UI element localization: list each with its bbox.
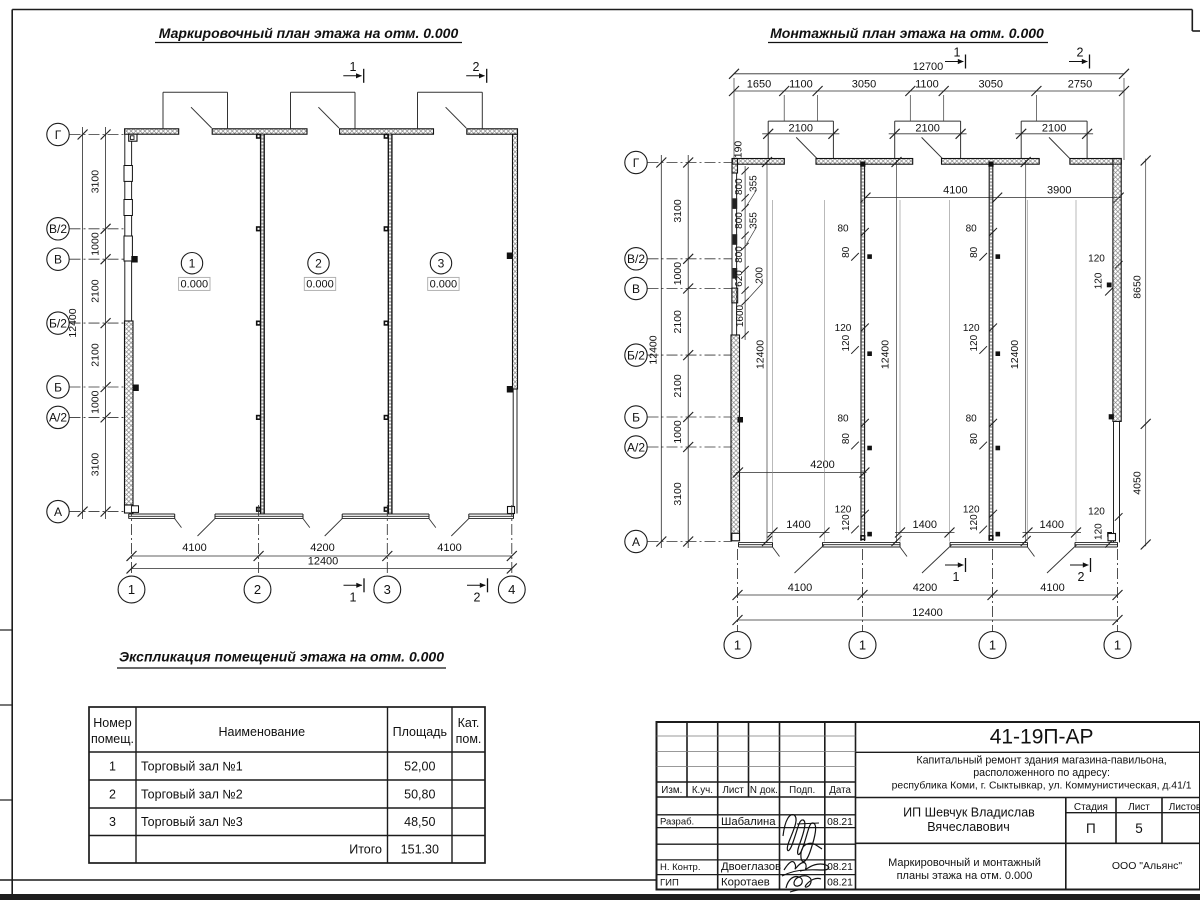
svg-text:355: 355 [748, 212, 759, 229]
svg-text:12400: 12400 [67, 308, 79, 337]
svg-text:планы этажа на отм. 0.000: планы этажа на отм. 0.000 [897, 870, 1033, 882]
svg-text:1400: 1400 [786, 519, 810, 531]
svg-text:4100: 4100 [943, 185, 967, 197]
svg-text:Г: Г [55, 128, 62, 142]
svg-text:Вячеславович: Вячеславович [927, 820, 1010, 834]
svg-text:Н. Контр.: Н. Контр. [660, 862, 700, 873]
svg-text:120: 120 [963, 323, 980, 334]
svg-text:П: П [1086, 821, 1096, 836]
svg-text:Капитальный ремонт здания мага: Капитальный ремонт здания магазина-павил… [916, 755, 1166, 767]
svg-text:Маркировочный план этажа на от: Маркировочный план этажа на отм. 0.000 [159, 25, 459, 41]
svg-text:3100: 3100 [90, 453, 102, 477]
svg-text:200: 200 [755, 267, 766, 284]
svg-text:120: 120 [1088, 507, 1105, 518]
svg-text:355: 355 [748, 175, 759, 192]
svg-text:120: 120 [835, 505, 852, 516]
svg-text:120: 120 [969, 334, 980, 351]
svg-text:1000: 1000 [90, 390, 102, 414]
svg-text:80: 80 [841, 246, 852, 258]
svg-text:120: 120 [963, 505, 980, 516]
svg-text:Б: Б [54, 380, 62, 394]
svg-text:2100: 2100 [789, 122, 813, 134]
svg-text:4100: 4100 [788, 582, 812, 594]
svg-text:1: 1 [109, 760, 116, 774]
svg-text:80: 80 [837, 414, 849, 425]
svg-text:1: 1 [989, 638, 996, 653]
svg-text:3: 3 [384, 582, 391, 597]
svg-text:1100: 1100 [915, 79, 939, 91]
svg-text:120: 120 [1094, 523, 1105, 540]
svg-text:2: 2 [474, 591, 481, 605]
svg-text:А: А [54, 505, 62, 519]
svg-text:В/2: В/2 [627, 252, 645, 266]
svg-text:помещ.: помещ. [91, 732, 134, 746]
svg-text:1400: 1400 [1040, 519, 1064, 531]
svg-text:3100: 3100 [672, 482, 684, 506]
svg-text:2: 2 [1078, 570, 1085, 584]
svg-text:Дата: Дата [829, 785, 851, 796]
svg-text:120: 120 [1094, 272, 1105, 289]
svg-text:4200: 4200 [913, 582, 937, 594]
svg-text:Стадия: Стадия [1074, 802, 1108, 813]
svg-text:Подп.: Подп. [789, 785, 815, 796]
svg-text:80: 80 [837, 224, 849, 235]
svg-text:Торговый зал №2: Торговый зал №2 [141, 788, 243, 802]
svg-text:2: 2 [254, 582, 261, 597]
svg-text:2100: 2100 [915, 122, 939, 134]
svg-text:1000: 1000 [90, 232, 102, 256]
svg-text:80: 80 [969, 246, 980, 258]
svg-text:1000: 1000 [672, 420, 684, 444]
svg-text:120: 120 [841, 334, 852, 351]
svg-text:12400: 12400 [912, 607, 943, 619]
svg-text:12700: 12700 [913, 61, 944, 73]
svg-text:2100: 2100 [1042, 122, 1066, 134]
svg-text:1650: 1650 [747, 79, 771, 91]
svg-text:расположенного по адресу:: расположенного по адресу: [973, 767, 1110, 779]
svg-text:3050: 3050 [979, 79, 1003, 91]
svg-text:5: 5 [1135, 821, 1143, 836]
svg-text:80: 80 [966, 414, 978, 425]
svg-text:12400: 12400 [648, 335, 660, 364]
svg-text:2100: 2100 [672, 310, 684, 334]
svg-text:Двоеглазов: Двоеглазов [721, 861, 781, 873]
svg-text:12400: 12400 [880, 340, 892, 369]
svg-text:Наименование: Наименование [218, 725, 305, 739]
svg-text:Экспликация помещений этажа на: Экспликация помещений этажа на отм. 0.00… [119, 649, 444, 665]
svg-text:Листов: Листов [1169, 802, 1200, 813]
svg-text:2750: 2750 [1068, 79, 1092, 91]
svg-text:3: 3 [438, 257, 445, 271]
svg-text:1: 1 [128, 582, 135, 597]
svg-text:3900: 3900 [1047, 185, 1071, 197]
svg-text:Торговый зал №1: Торговый зал №1 [141, 760, 243, 774]
svg-text:4100: 4100 [1040, 582, 1064, 594]
svg-text:120: 120 [969, 514, 980, 531]
svg-text:пом.: пом. [456, 732, 482, 746]
svg-text:80: 80 [969, 433, 980, 445]
svg-text:А: А [632, 535, 640, 549]
svg-text:2100: 2100 [672, 374, 684, 398]
svg-text:1600: 1600 [735, 304, 746, 327]
svg-text:4100: 4100 [437, 542, 461, 554]
svg-text:Разраб.: Разраб. [660, 817, 694, 828]
svg-text:1: 1 [953, 570, 960, 584]
svg-text:120: 120 [841, 514, 852, 531]
svg-text:3050: 3050 [852, 79, 876, 91]
svg-text:4100: 4100 [182, 542, 206, 554]
svg-text:4200: 4200 [810, 459, 834, 471]
svg-text:Б/2: Б/2 [49, 316, 67, 330]
svg-text:2: 2 [109, 788, 116, 802]
svg-text:800: 800 [734, 212, 745, 229]
svg-text:1000: 1000 [672, 262, 684, 286]
svg-text:190: 190 [732, 141, 744, 159]
svg-text:1: 1 [350, 60, 357, 74]
svg-text:2: 2 [315, 257, 322, 271]
svg-text:0.000: 0.000 [430, 278, 458, 290]
svg-text:Кат.: Кат. [458, 716, 480, 730]
svg-text:4: 4 [508, 582, 515, 597]
svg-text:1400: 1400 [913, 519, 937, 531]
svg-text:120: 120 [835, 323, 852, 334]
svg-text:800: 800 [734, 246, 745, 263]
svg-text:151.30: 151.30 [401, 843, 439, 857]
svg-text:ИП Шевчук Владислав: ИП Шевчук Владислав [903, 806, 1035, 820]
svg-text:2100: 2100 [90, 279, 102, 303]
svg-text:2: 2 [1077, 46, 1084, 60]
svg-text:N док.: N док. [750, 785, 778, 796]
svg-text:Шабалина: Шабалина [721, 816, 776, 828]
svg-text:Торговый зал №3: Торговый зал №3 [141, 815, 243, 829]
svg-text:3100: 3100 [672, 199, 684, 223]
svg-text:2100: 2100 [90, 343, 102, 367]
svg-text:41-19П-АР: 41-19П-АР [990, 726, 1094, 749]
svg-text:800: 800 [734, 178, 745, 195]
svg-text:ООО "Альянс": ООО "Альянс" [1112, 860, 1182, 872]
svg-text:120: 120 [1088, 254, 1105, 265]
svg-text:3: 3 [109, 815, 116, 829]
svg-text:Б/2: Б/2 [627, 348, 645, 362]
svg-text:3100: 3100 [90, 170, 102, 194]
svg-text:12400: 12400 [1009, 340, 1021, 369]
svg-text:1100: 1100 [789, 79, 813, 91]
svg-text:4200: 4200 [310, 542, 334, 554]
svg-text:1: 1 [189, 257, 196, 271]
svg-text:52,00: 52,00 [404, 760, 435, 774]
svg-text:08.21: 08.21 [827, 862, 853, 873]
svg-text:1: 1 [954, 46, 961, 60]
svg-text:48,50: 48,50 [404, 815, 435, 829]
svg-text:1: 1 [859, 638, 866, 653]
svg-text:Итого: Итого [349, 843, 382, 857]
svg-text:2: 2 [473, 60, 480, 74]
svg-text:0.000: 0.000 [306, 278, 334, 290]
svg-text:В: В [54, 253, 62, 267]
svg-text:12400: 12400 [308, 555, 339, 567]
svg-text:Маркировочный и монтажный: Маркировочный и монтажный [888, 857, 1041, 869]
svg-text:12400: 12400 [755, 340, 767, 369]
svg-text:Площадь: Площадь [393, 725, 447, 739]
svg-text:Коротаев: Коротаев [721, 877, 770, 889]
svg-text:Лист: Лист [722, 785, 744, 796]
svg-text:К.уч.: К.уч. [692, 785, 713, 796]
svg-text:1: 1 [1114, 638, 1121, 653]
svg-text:80: 80 [841, 433, 852, 445]
svg-text:Номер: Номер [93, 716, 132, 730]
svg-text:Б: Б [632, 410, 640, 424]
svg-text:8650: 8650 [1132, 275, 1144, 299]
svg-text:08.21: 08.21 [827, 817, 853, 828]
svg-text:ГИП: ГИП [660, 877, 679, 888]
svg-text:А/2: А/2 [627, 440, 645, 454]
svg-text:0.000: 0.000 [181, 278, 209, 290]
svg-text:1: 1 [350, 591, 357, 605]
svg-text:4050: 4050 [1132, 471, 1144, 495]
svg-text:80: 80 [966, 224, 978, 235]
svg-text:Монтажный план этажа на отм. 0: Монтажный план этажа на отм. 0.000 [770, 25, 1044, 41]
svg-text:620: 620 [734, 270, 745, 287]
svg-text:1: 1 [734, 638, 741, 653]
svg-text:08.21: 08.21 [827, 878, 853, 889]
svg-text:Изм.: Изм. [661, 785, 682, 796]
svg-text:Лист: Лист [1128, 802, 1150, 813]
svg-text:В/2: В/2 [49, 222, 67, 236]
svg-text:В: В [632, 282, 640, 296]
svg-text:Г: Г [633, 156, 640, 170]
svg-text:50,80: 50,80 [404, 788, 435, 802]
svg-text:А/2: А/2 [49, 411, 67, 425]
svg-text:республика Коми, г. Сыктывкар,: республика Коми, г. Сыктывкар, ул. Комму… [892, 780, 1192, 792]
